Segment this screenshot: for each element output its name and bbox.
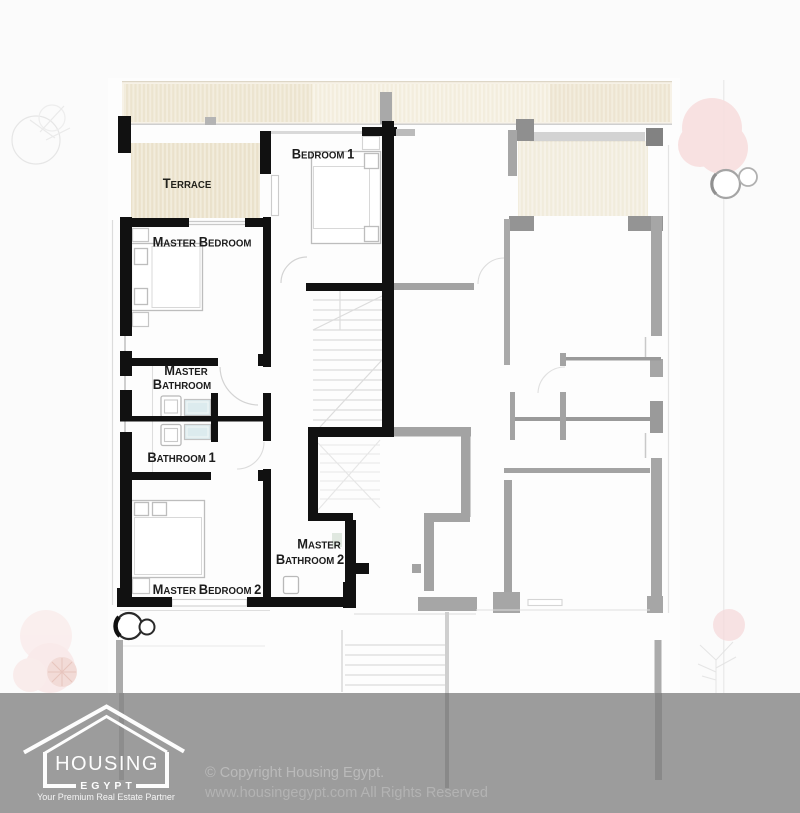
svg-text:www.housingegypt.com All Right: www.housingegypt.com All Rights Reserved: [204, 785, 488, 801]
svg-text:© Copyright Housing Egypt.: © Copyright Housing Egypt.: [205, 765, 384, 781]
svg-text:HOUSING: HOUSING: [55, 753, 159, 775]
svg-text:EGYPT: EGYPT: [80, 780, 136, 792]
svg-text:Your Premium Real Estate Partn: Your Premium Real Estate Partner: [37, 792, 175, 802]
